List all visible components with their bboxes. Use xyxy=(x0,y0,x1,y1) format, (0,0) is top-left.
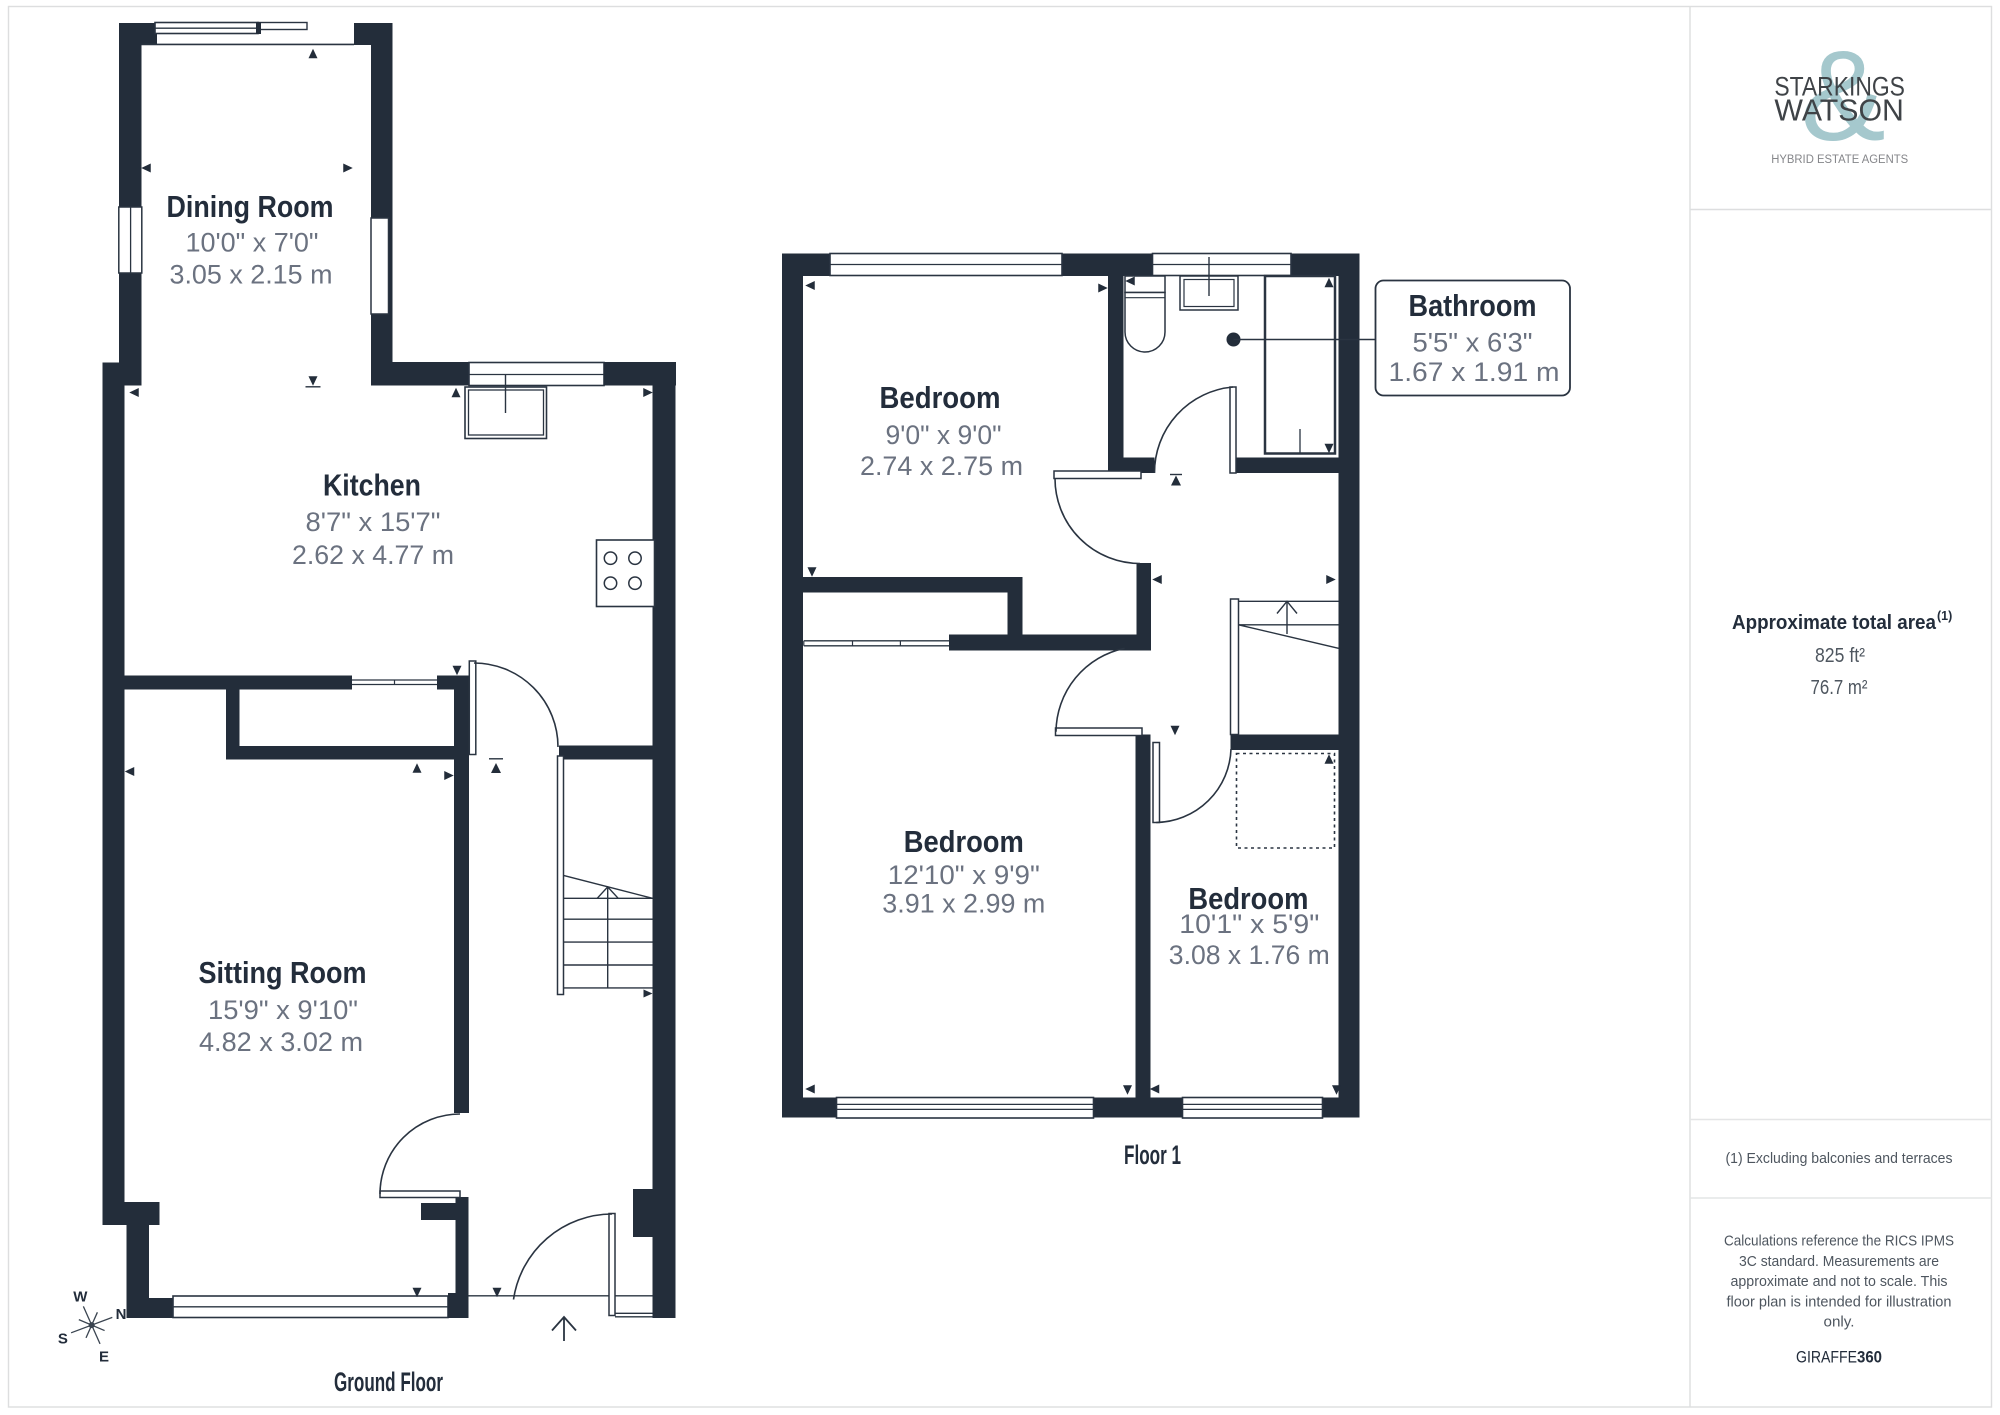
svg-text:15'9" x 9'10": 15'9" x 9'10" xyxy=(208,995,358,1025)
svg-text:Floor 1: Floor 1 xyxy=(1124,1140,1181,1170)
svg-text:10'1" x 5'9": 10'1" x 5'9" xyxy=(1179,909,1319,939)
svg-text:Approximate total area: Approximate total area xyxy=(1732,611,1937,634)
svg-text:approximate and not to scale.: approximate and not to scale. This xyxy=(1731,1273,1948,1290)
svg-text:Bedroom: Bedroom xyxy=(880,380,1001,415)
svg-text:(1): (1) xyxy=(1937,609,1952,623)
svg-text:3.08 x 1.76 m: 3.08 x 1.76 m xyxy=(1169,940,1330,970)
svg-text:floor plan is intended for ill: floor plan is intended for illustration xyxy=(1727,1293,1952,1310)
svg-text:W: W xyxy=(73,1289,88,1306)
svg-text:WATSON: WATSON xyxy=(1774,93,1904,128)
svg-text:12'10" x 9'9": 12'10" x 9'9" xyxy=(888,860,1040,890)
svg-text:Dining Room: Dining Room xyxy=(167,189,334,224)
svg-text:GIRAFFE: GIRAFFE xyxy=(1796,1348,1857,1367)
svg-text:10'0" x 7'0": 10'0" x 7'0" xyxy=(186,228,319,258)
svg-text:5'5" x 6'3": 5'5" x 6'3" xyxy=(1413,328,1533,358)
svg-text:76.7 m²: 76.7 m² xyxy=(1811,677,1868,699)
svg-text:N: N xyxy=(116,1306,127,1323)
svg-text:Kitchen: Kitchen xyxy=(323,468,421,503)
svg-text:3C standard. Measurements are: 3C standard. Measurements are xyxy=(1739,1253,1939,1270)
svg-text:8'7" x 15'7": 8'7" x 15'7" xyxy=(306,507,441,537)
svg-text:360: 360 xyxy=(1857,1348,1882,1367)
svg-text:only.: only. xyxy=(1824,1314,1855,1331)
svg-text:Ground Floor: Ground Floor xyxy=(334,1367,443,1397)
svg-text:E: E xyxy=(99,1349,109,1366)
svg-text:Bathroom: Bathroom xyxy=(1409,288,1537,323)
svg-text:S: S xyxy=(58,1331,68,1348)
svg-text:HYBRID ESTATE AGENTS: HYBRID ESTATE AGENTS xyxy=(1771,154,1908,166)
svg-text:3.05 x 2.15 m: 3.05 x 2.15 m xyxy=(170,260,333,290)
svg-text:1.67 x 1.91 m: 1.67 x 1.91 m xyxy=(1389,357,1560,387)
svg-text:9'0" x 9'0": 9'0" x 9'0" xyxy=(886,420,1002,450)
svg-text:(1) Excluding balconies and te: (1) Excluding balconies and terraces xyxy=(1726,1150,1953,1167)
svg-text:825 ft²: 825 ft² xyxy=(1815,645,1865,667)
svg-text:3.91 x 2.99 m: 3.91 x 2.99 m xyxy=(882,889,1045,919)
svg-text:2.62 x 4.77 m: 2.62 x 4.77 m xyxy=(292,540,454,570)
svg-text:4.82 x 3.02 m: 4.82 x 3.02 m xyxy=(199,1027,363,1057)
svg-text:Calculations reference the RIC: Calculations reference the RICS IPMS xyxy=(1724,1233,1954,1250)
svg-text:Sitting Room: Sitting Room xyxy=(199,955,367,990)
svg-text:2.74 x 2.75 m: 2.74 x 2.75 m xyxy=(860,451,1023,481)
svg-text:Bedroom: Bedroom xyxy=(904,824,1024,859)
